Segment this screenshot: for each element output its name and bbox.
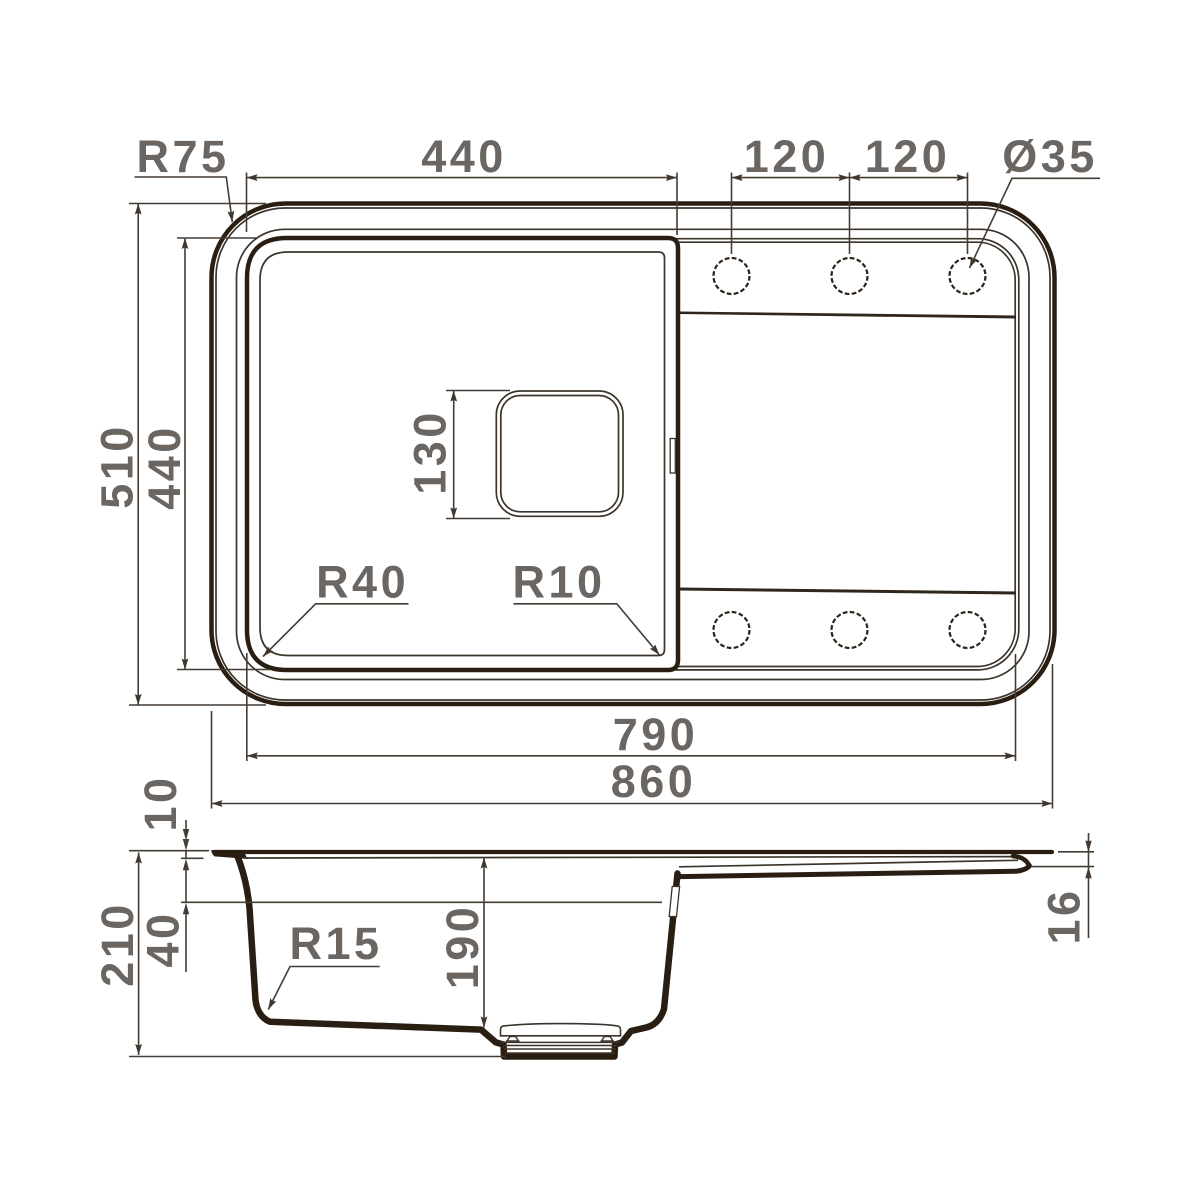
svg-text:440: 440 <box>139 424 190 510</box>
svg-text:R40: R40 <box>316 556 409 607</box>
svg-text:R75: R75 <box>136 131 229 182</box>
svg-text:790: 790 <box>613 709 699 760</box>
svg-text:40: 40 <box>137 910 188 967</box>
svg-text:10: 10 <box>135 774 186 831</box>
svg-text:R15: R15 <box>289 918 382 969</box>
svg-text:860: 860 <box>611 756 697 807</box>
svg-text:510: 510 <box>91 423 142 509</box>
svg-text:120: 120 <box>865 131 951 182</box>
svg-text:R10: R10 <box>512 556 605 607</box>
svg-text:440: 440 <box>421 131 507 182</box>
svg-text:Ø35: Ø35 <box>1002 131 1098 182</box>
svg-text:16: 16 <box>1038 887 1089 944</box>
svg-text:210: 210 <box>92 901 143 987</box>
svg-text:130: 130 <box>404 409 455 495</box>
svg-text:120: 120 <box>744 131 830 182</box>
svg-text:190: 190 <box>437 904 488 990</box>
